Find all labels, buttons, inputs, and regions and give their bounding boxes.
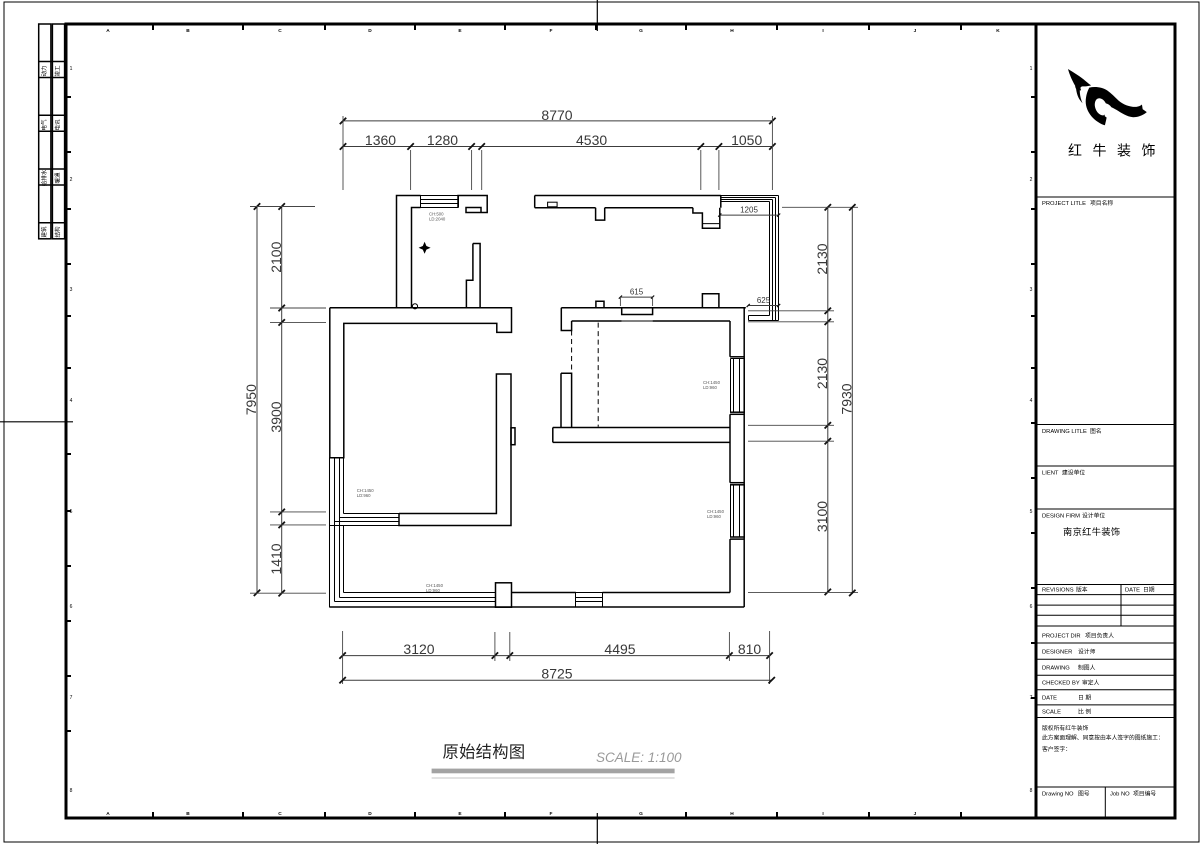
svg-text:3: 3 (1030, 287, 1033, 293)
svg-text:B: B (186, 811, 190, 817)
svg-text:C: C (278, 811, 282, 817)
svg-text:1205: 1205 (740, 206, 758, 215)
svg-text:8770: 8770 (541, 107, 572, 123)
svg-text:版本: 版本 (1076, 586, 1088, 594)
svg-text:H: H (730, 811, 734, 817)
svg-text:7950: 7950 (243, 384, 259, 415)
svg-text:3100: 3100 (814, 501, 830, 532)
svg-text:DATE: DATE (1125, 588, 1140, 594)
svg-text:设计师: 设计师 (1078, 648, 1096, 656)
svg-text:2130: 2130 (814, 358, 830, 389)
svg-text:K: K (996, 28, 1000, 34)
svg-text:625: 625 (757, 296, 771, 305)
svg-text:C: C (278, 28, 282, 34)
svg-text:版权所有红牛装饰: 版权所有红牛装饰 (1042, 724, 1089, 732)
svg-text:南京红牛装饰: 南京红牛装饰 (1063, 526, 1121, 537)
svg-text:2100: 2100 (268, 241, 284, 272)
svg-text:810: 810 (738, 641, 762, 657)
svg-text:E: E (458, 811, 462, 817)
svg-text:3120: 3120 (403, 641, 434, 657)
svg-text:7: 7 (70, 695, 73, 701)
svg-text:项目负责人: 项目负责人 (1085, 632, 1114, 640)
svg-text:5: 5 (1030, 509, 1033, 515)
svg-text:6: 6 (1030, 604, 1033, 610)
svg-text:4495: 4495 (604, 641, 635, 657)
svg-text:A: A (106, 811, 110, 817)
svg-text:DRAWING: DRAWING (1042, 666, 1070, 672)
svg-text:CHECKED BY: CHECKED BY (1042, 681, 1080, 687)
svg-text:PROJECT LITLE: PROJECT LITLE (1042, 201, 1086, 207)
svg-text:615: 615 (630, 288, 644, 297)
svg-text:LD:960: LD:960 (707, 514, 721, 519)
svg-text:REVISIONS: REVISIONS (1042, 588, 1074, 594)
svg-text:项目编号: 项目编号 (1133, 790, 1156, 798)
svg-text:B: B (186, 28, 190, 34)
svg-text:日期: 日期 (1143, 587, 1155, 594)
svg-text:A: A (106, 28, 110, 34)
svg-text:8: 8 (70, 788, 73, 794)
svg-text:图号: 图号 (1078, 790, 1090, 798)
svg-text:给排水: 给排水 (40, 169, 48, 186)
svg-text:1360: 1360 (365, 132, 396, 148)
svg-text:LD:960: LD:960 (426, 588, 440, 593)
svg-text:LD:960: LD:960 (357, 493, 371, 498)
svg-text:图名: 图名 (1090, 427, 1102, 435)
svg-text:LD:2040: LD:2040 (429, 217, 446, 222)
svg-text:客户签字：: 客户签字： (1042, 745, 1071, 753)
svg-text:2: 2 (70, 177, 73, 183)
svg-text:F: F (550, 28, 553, 34)
svg-text:暖通: 暖通 (54, 172, 62, 184)
svg-text:项目名称: 项目名称 (1090, 199, 1113, 207)
svg-text:4: 4 (70, 398, 73, 404)
svg-text:J: J (914, 811, 917, 817)
svg-text:J: J (914, 28, 917, 34)
svg-text:2130: 2130 (814, 243, 830, 274)
svg-text:SCALE: 1:100: SCALE: 1:100 (596, 750, 682, 765)
svg-text:比 例: 比 例 (1078, 708, 1091, 716)
svg-text:日 期: 日 期 (1078, 695, 1091, 702)
svg-text:LIENT: LIENT (1042, 471, 1059, 477)
svg-text:原始结构图: 原始结构图 (443, 744, 526, 762)
svg-text:DESIGNER: DESIGNER (1042, 650, 1072, 656)
svg-text:竣工: 竣工 (54, 65, 62, 77)
svg-text:此方案面理解、同意按由本人签字的图纸施工：: 此方案面理解、同意按由本人签字的图纸施工： (1042, 734, 1164, 742)
svg-text:制图人: 制图人 (1078, 664, 1096, 672)
svg-text:I: I (822, 28, 824, 34)
svg-text:1: 1 (70, 66, 73, 72)
svg-text:DRAWING LITLE: DRAWING LITLE (1042, 429, 1087, 435)
svg-text:7930: 7930 (839, 383, 855, 414)
svg-text:1410: 1410 (268, 543, 284, 574)
svg-text:3: 3 (70, 287, 73, 293)
svg-text:建筑: 建筑 (40, 226, 48, 238)
svg-text:电气: 电气 (40, 119, 48, 131)
svg-text:动力: 动力 (40, 65, 48, 76)
svg-text:G: G (639, 28, 643, 34)
svg-text:I: I (822, 811, 824, 817)
svg-text:2: 2 (1030, 177, 1033, 183)
svg-text:红牛装饰: 红牛装饰 (1068, 143, 1166, 159)
svg-text:F: F (550, 811, 553, 817)
svg-text:Drawing NO: Drawing NO (1042, 792, 1074, 798)
svg-text:电讯: 电讯 (54, 119, 62, 131)
svg-text:4: 4 (1030, 398, 1033, 404)
svg-text:8: 8 (1030, 788, 1033, 794)
svg-text:D: D (368, 28, 372, 34)
svg-text:DESIGN FIRM: DESIGN FIRM (1042, 514, 1080, 520)
svg-text:8725: 8725 (541, 666, 572, 682)
svg-text:E: E (458, 28, 462, 34)
svg-text:结构: 结构 (54, 226, 62, 238)
svg-text:设计单位: 设计单位 (1082, 512, 1105, 520)
svg-text:PROJECT DIR: PROJECT DIR (1042, 634, 1081, 640)
svg-text:3900: 3900 (268, 401, 284, 432)
svg-text:1050: 1050 (731, 132, 762, 148)
svg-text:1280: 1280 (427, 132, 458, 148)
svg-text:4530: 4530 (576, 132, 607, 148)
svg-text:D: D (368, 811, 372, 817)
svg-text:1: 1 (1030, 66, 1033, 72)
svg-text:6: 6 (70, 604, 73, 610)
svg-text:审定人: 审定人 (1082, 679, 1100, 687)
svg-text:SCALE: SCALE (1042, 710, 1061, 716)
svg-text:LD:960: LD:960 (703, 385, 717, 390)
svg-text:DATE: DATE (1042, 696, 1057, 702)
svg-text:Job NO: Job NO (1110, 792, 1130, 798)
svg-text:G: G (639, 811, 643, 817)
svg-text:建设单位: 建设单位 (1062, 469, 1085, 477)
svg-text:H: H (730, 28, 734, 34)
